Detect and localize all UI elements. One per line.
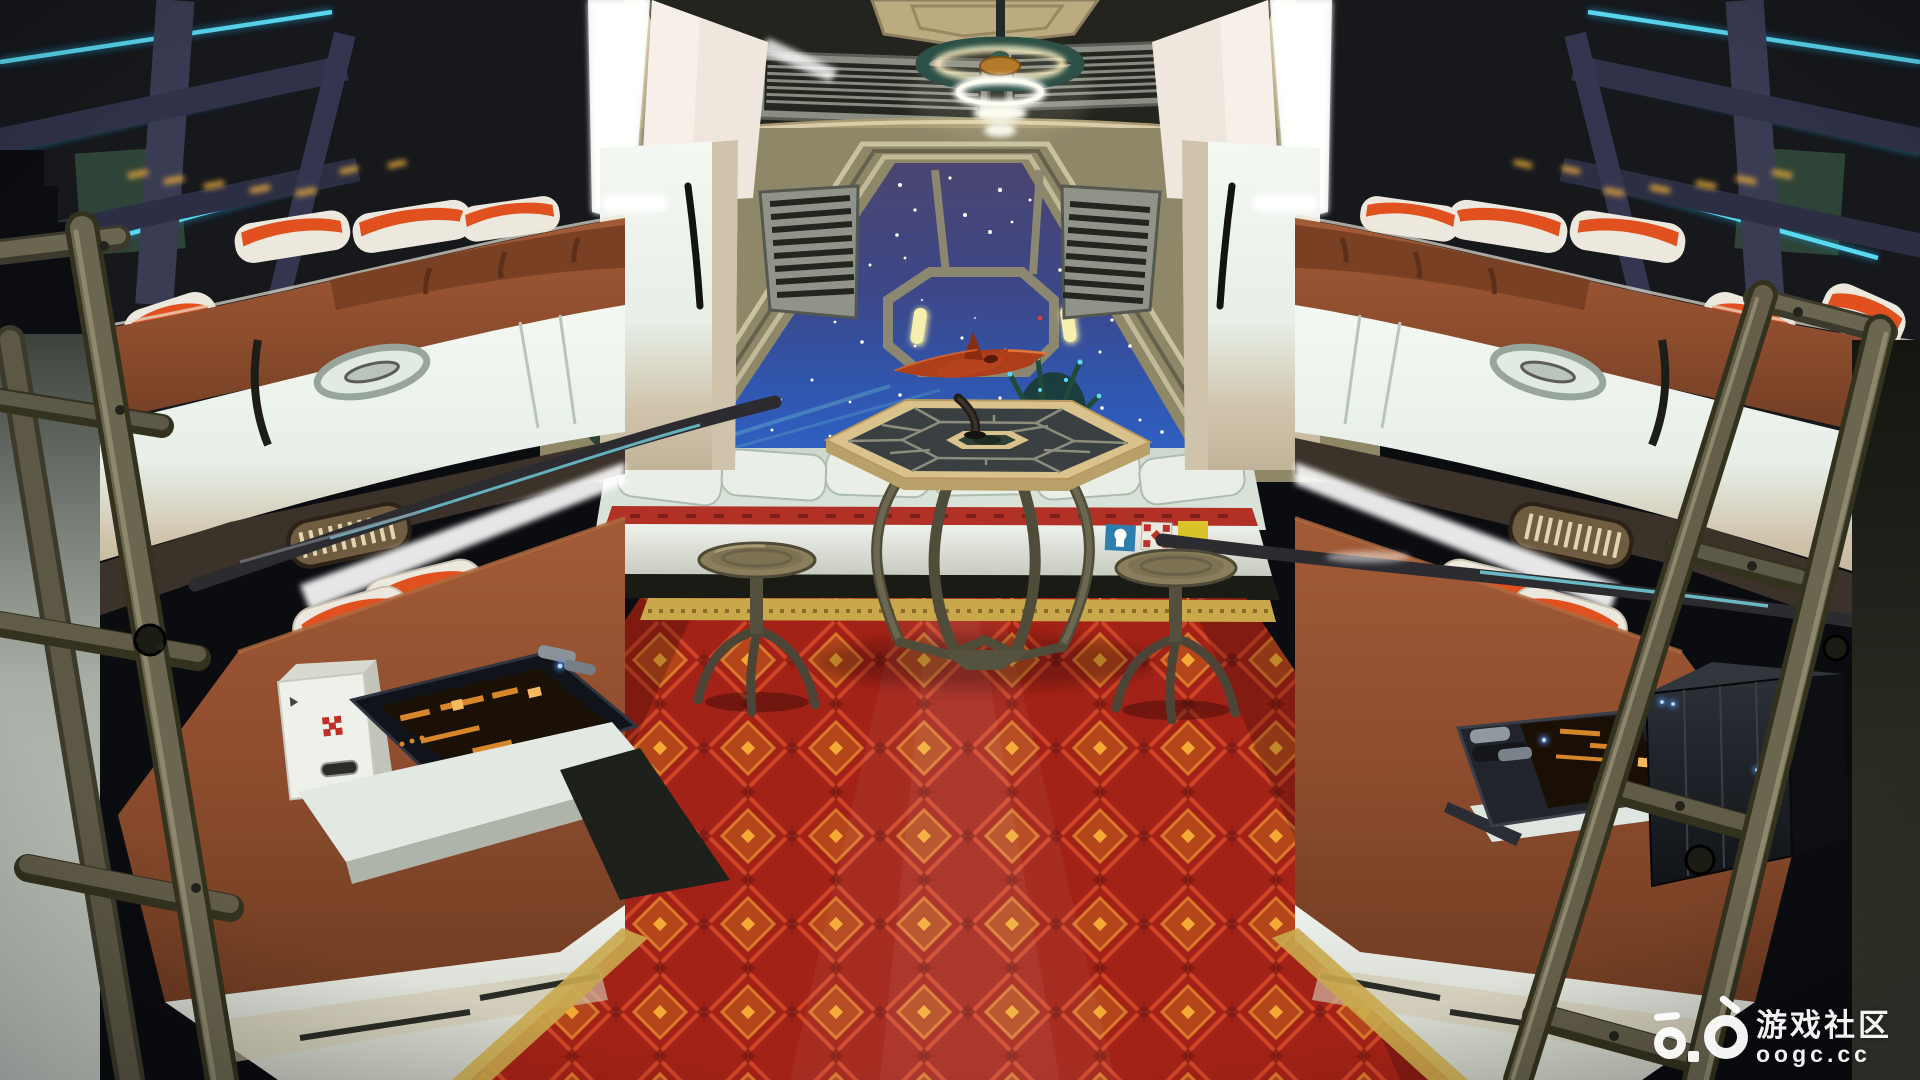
watermark-site-url: oogc.cc xyxy=(1756,1042,1892,1066)
logo-dot xyxy=(1688,1051,1699,1062)
logo-eyebrow-left xyxy=(1654,1012,1681,1021)
logo-eye-left xyxy=(1654,1027,1686,1059)
vignette xyxy=(0,0,1920,1080)
game-viewport[interactable]: 游戏社区 oogc.cc Spaceship crew quarters int… xyxy=(0,0,1920,1080)
watermark-site-name: 游戏社区 xyxy=(1756,1010,1892,1043)
logo-eye-right xyxy=(1704,1015,1748,1059)
watermark-logo-icon xyxy=(1648,1003,1744,1073)
watermark: 游戏社区 oogc.cc xyxy=(1648,1000,1918,1076)
scene-render xyxy=(0,0,1920,1080)
